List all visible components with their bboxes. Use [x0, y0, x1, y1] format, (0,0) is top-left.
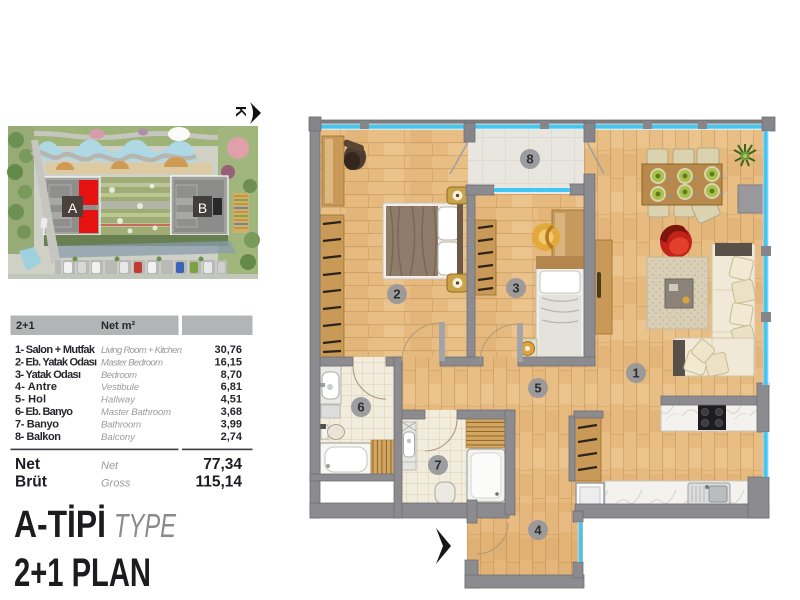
svg-text:Hallway: Hallway: [101, 395, 136, 406]
svg-text:2: 2: [393, 287, 400, 302]
svg-text:8,70: 8,70: [221, 369, 242, 381]
svg-text:1: 1: [632, 366, 639, 381]
svg-text:2+1 PLAN: 2+1 PLAN: [14, 551, 151, 595]
svg-text:115,14: 115,14: [195, 474, 242, 491]
svg-text:1- Salon + Mutfak: 1- Salon + Mutfak: [15, 344, 96, 356]
svg-text:Vestibule: Vestibule: [101, 382, 139, 393]
svg-text:4- Antre: 4- Antre: [15, 381, 57, 393]
svg-text:Bedroom: Bedroom: [101, 370, 137, 381]
svg-text:3,68: 3,68: [221, 406, 242, 418]
svg-text:5- Hol: 5- Hol: [15, 394, 46, 406]
svg-text:Net m²: Net m²: [101, 320, 136, 332]
svg-text:2,74: 2,74: [221, 431, 243, 443]
svg-text:7: 7: [434, 458, 441, 473]
svg-text:Balcony: Balcony: [101, 432, 136, 443]
svg-text:16,15: 16,15: [214, 356, 242, 368]
svg-text:3,99: 3,99: [221, 418, 242, 430]
svg-text:A: A: [68, 200, 78, 216]
svg-text:Master Bathroom: Master Bathroom: [101, 407, 171, 418]
svg-text:30,76: 30,76: [214, 344, 242, 356]
svg-text:4: 4: [534, 523, 542, 538]
svg-text:Brüt: Brüt: [15, 474, 47, 491]
svg-text:Net: Net: [101, 460, 119, 472]
svg-text:7- Banyo: 7- Banyo: [15, 418, 59, 430]
svg-text:2+1: 2+1: [16, 320, 35, 332]
svg-text:5: 5: [534, 381, 541, 396]
svg-text:2- Eb. Yatak Odası: 2- Eb. Yatak Odası: [15, 356, 97, 368]
svg-text:8- Balkon: 8- Balkon: [15, 431, 61, 443]
svg-text:TYPE: TYPE: [114, 507, 177, 544]
svg-text:Bathroom: Bathroom: [101, 419, 141, 430]
svg-text:B: B: [198, 200, 207, 216]
svg-text:Gross: Gross: [101, 478, 131, 490]
svg-text:Net: Net: [15, 456, 40, 473]
svg-text:4,51: 4,51: [221, 394, 242, 406]
svg-text:77,34: 77,34: [203, 456, 242, 473]
svg-text:A-TİPİ: A-TİPİ: [14, 504, 106, 546]
svg-text:Master Bedroom: Master Bedroom: [101, 357, 163, 368]
svg-text:8: 8: [526, 152, 533, 167]
svg-text:6,81: 6,81: [221, 381, 242, 393]
svg-text:3: 3: [512, 281, 519, 296]
svg-text:3- Yatak Odası: 3- Yatak Odası: [15, 369, 81, 381]
svg-text:K: K: [232, 106, 249, 117]
svg-text:6- Eb. Banyo: 6- Eb. Banyo: [15, 406, 73, 418]
svg-text:6: 6: [357, 400, 364, 415]
svg-text:Living Room + Kitchen: Living Room + Kitchen: [101, 345, 182, 356]
